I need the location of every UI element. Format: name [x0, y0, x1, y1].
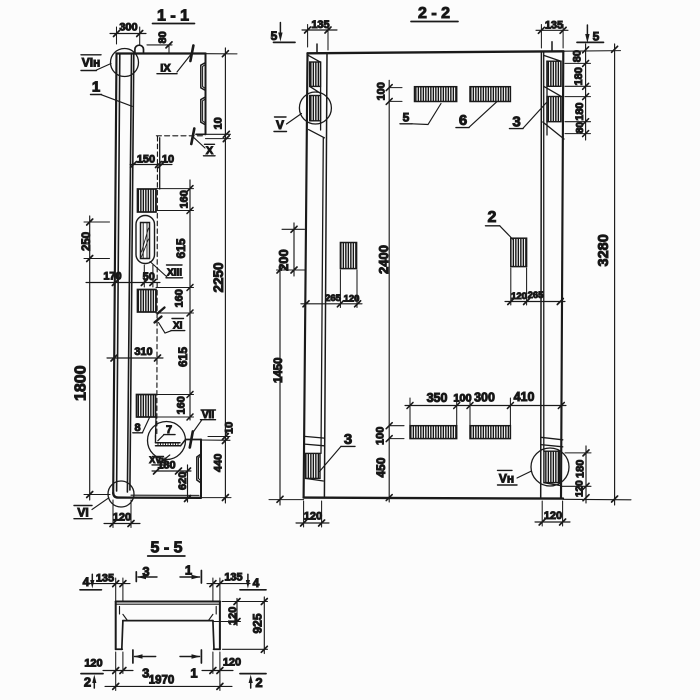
- svg-text:120: 120: [544, 510, 562, 522]
- svg-text:100: 100: [453, 393, 471, 405]
- svg-text:615: 615: [174, 238, 188, 258]
- svg-text:300: 300: [474, 391, 495, 405]
- svg-text:160: 160: [174, 289, 186, 307]
- svg-text:925: 925: [251, 613, 265, 633]
- svg-text:1: 1: [92, 79, 100, 96]
- svg-text:300: 300: [119, 22, 137, 34]
- svg-text:XIII: XIII: [167, 268, 182, 279]
- svg-text:135: 135: [311, 19, 329, 31]
- svg-text:160: 160: [179, 190, 191, 208]
- svg-text:135: 135: [545, 19, 563, 31]
- svg-text:X: X: [206, 145, 214, 157]
- svg-text:V: V: [276, 118, 284, 132]
- svg-text:IX: IX: [160, 63, 171, 75]
- svg-text:5: 5: [403, 111, 410, 125]
- svg-text:5: 5: [593, 30, 600, 44]
- svg-text:120: 120: [227, 607, 239, 625]
- svg-text:VI: VI: [77, 506, 88, 520]
- svg-text:10: 10: [224, 422, 236, 434]
- svg-text:410: 410: [514, 390, 535, 404]
- svg-text:10: 10: [213, 117, 225, 129]
- svg-text:2: 2: [255, 675, 262, 690]
- svg-text:100: 100: [376, 82, 388, 100]
- svg-text:150: 150: [137, 154, 155, 166]
- svg-text:135: 135: [96, 573, 114, 585]
- svg-text:160: 160: [176, 396, 188, 414]
- svg-text:180: 180: [575, 460, 587, 478]
- svg-text:450: 450: [374, 457, 388, 477]
- svg-text:10: 10: [162, 154, 174, 166]
- svg-text:3280: 3280: [596, 234, 612, 266]
- svg-text:80: 80: [575, 122, 586, 134]
- svg-text:2250: 2250: [211, 262, 226, 292]
- svg-text:1450: 1450: [273, 357, 285, 383]
- svg-text:3: 3: [344, 431, 352, 448]
- svg-text:250: 250: [81, 232, 93, 251]
- svg-text:5 - 5: 5 - 5: [150, 540, 182, 557]
- svg-text:4: 4: [83, 575, 90, 589]
- svg-text:VIн: VIн: [82, 56, 101, 70]
- svg-text:1: 1: [185, 563, 192, 578]
- svg-text:100: 100: [375, 427, 387, 445]
- svg-text:120: 120: [344, 293, 360, 304]
- svg-text:80: 80: [572, 50, 584, 62]
- svg-text:2: 2: [488, 209, 497, 226]
- svg-text:6: 6: [459, 112, 467, 129]
- svg-text:180: 180: [573, 67, 585, 85]
- svg-text:80: 80: [157, 31, 169, 43]
- svg-text:120: 120: [511, 291, 527, 302]
- svg-text:200: 200: [276, 249, 291, 271]
- svg-text:265: 265: [528, 290, 545, 301]
- svg-text:2400: 2400: [376, 245, 391, 274]
- svg-text:1970: 1970: [149, 674, 175, 686]
- svg-text:180: 180: [574, 102, 586, 120]
- svg-text:170: 170: [103, 271, 121, 283]
- svg-text:50: 50: [143, 271, 155, 283]
- svg-text:120: 120: [84, 658, 102, 670]
- svg-text:4: 4: [253, 576, 260, 590]
- svg-text:350: 350: [427, 391, 448, 405]
- svg-text:120: 120: [113, 512, 131, 524]
- svg-text:310: 310: [134, 346, 152, 358]
- svg-text:120: 120: [575, 480, 586, 497]
- svg-text:135: 135: [224, 572, 242, 584]
- svg-text:615: 615: [176, 347, 190, 367]
- svg-text:5: 5: [271, 29, 278, 43]
- svg-text:1: 1: [190, 666, 197, 681]
- svg-text:1 - 1: 1 - 1: [157, 8, 189, 25]
- svg-text:120: 120: [223, 657, 241, 669]
- svg-text:2: 2: [84, 675, 91, 690]
- svg-text:2 - 2: 2 - 2: [418, 5, 450, 22]
- svg-text:265: 265: [325, 293, 342, 304]
- svg-text:1800: 1800: [73, 365, 90, 401]
- svg-text:Vн: Vн: [499, 472, 514, 486]
- svg-text:120: 120: [304, 511, 322, 523]
- svg-text:440: 440: [213, 454, 225, 472]
- svg-text:620: 620: [177, 472, 189, 490]
